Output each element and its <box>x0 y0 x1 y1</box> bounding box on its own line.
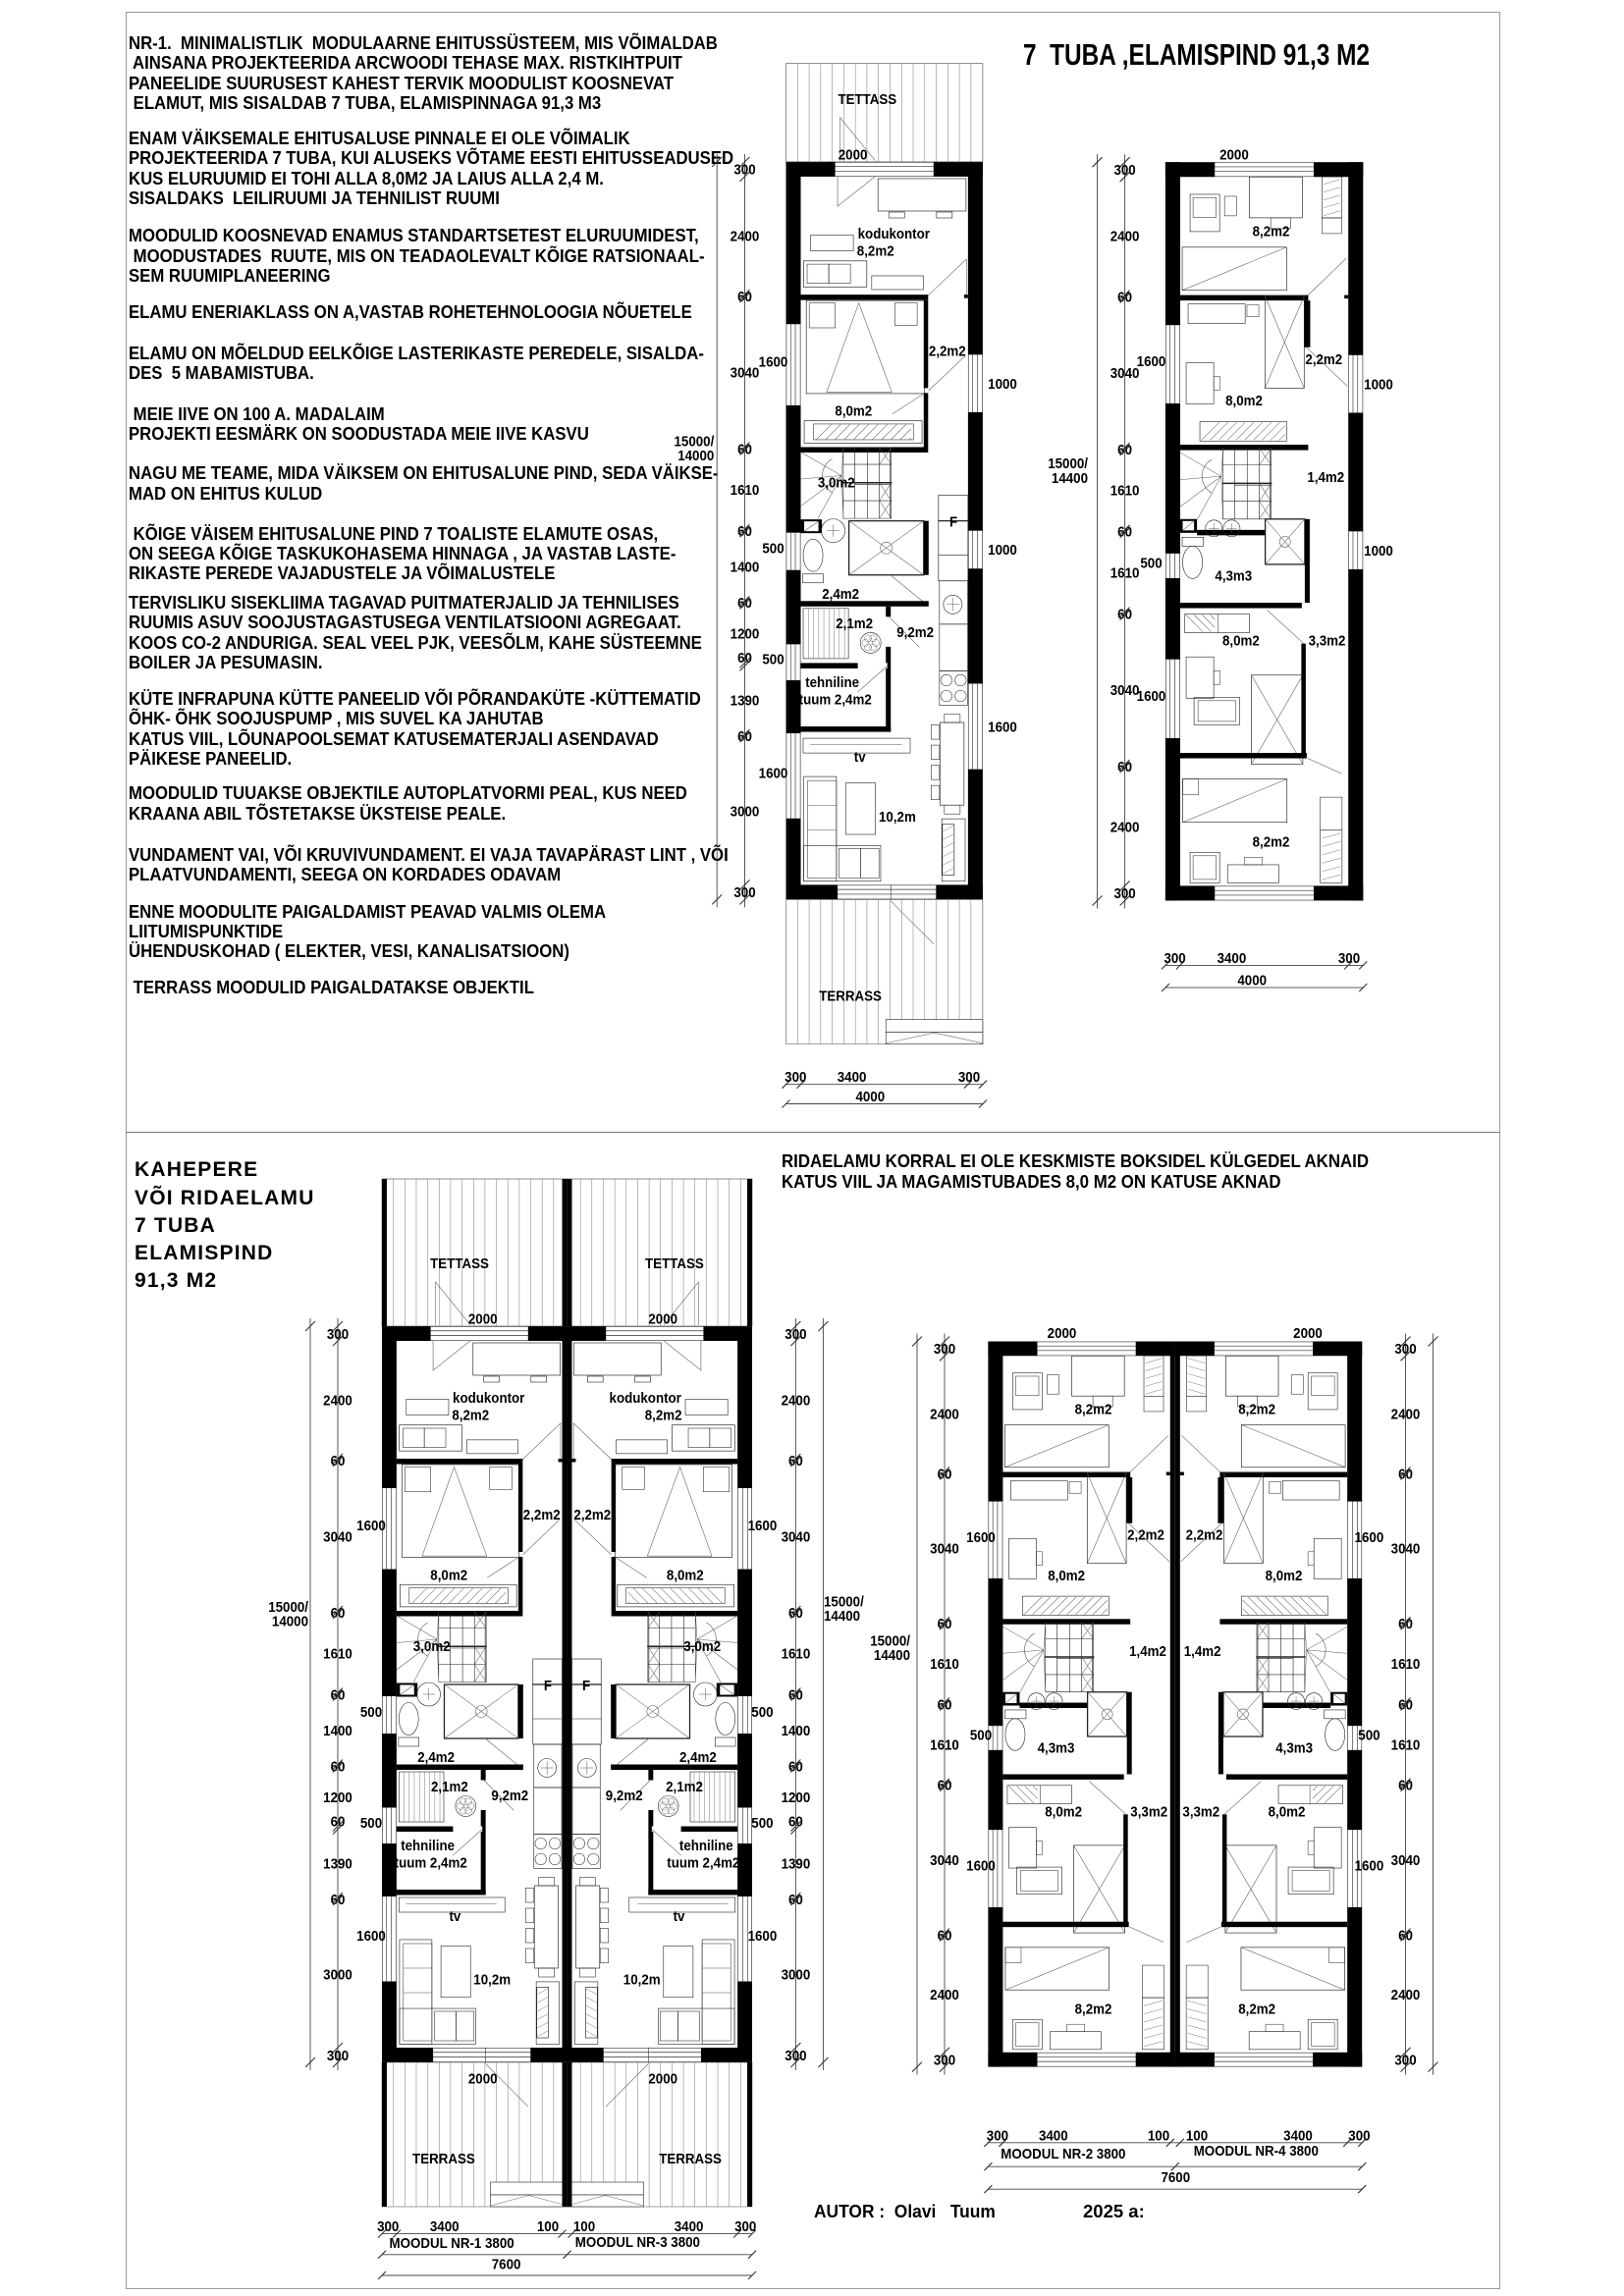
svg-text:8,0m2: 8,0m2 <box>430 1567 467 1583</box>
svg-text:1610: 1610 <box>930 1656 959 1673</box>
svg-text:2,2m2: 2,2m2 <box>573 1507 611 1523</box>
svg-text:9,2m2: 9,2m2 <box>606 1788 643 1804</box>
svg-text:1200: 1200 <box>731 625 760 642</box>
svg-text:1610: 1610 <box>731 482 760 499</box>
svg-text:8,2m2: 8,2m2 <box>1075 1401 1112 1417</box>
svg-text:3400: 3400 <box>1283 2127 1313 2144</box>
svg-text:1610: 1610 <box>782 1645 811 1662</box>
svg-text:1390: 1390 <box>731 692 760 709</box>
svg-text:10,2m: 10,2m <box>623 1971 661 1988</box>
svg-text:60: 60 <box>737 522 752 539</box>
svg-text:1400: 1400 <box>782 1722 811 1738</box>
svg-text:8,2m2: 8,2m2 <box>1253 223 1290 240</box>
svg-text:300: 300 <box>1113 885 1135 902</box>
svg-text:1600: 1600 <box>759 765 788 781</box>
svg-text:8,2m2: 8,2m2 <box>645 1407 682 1423</box>
svg-text:F: F <box>544 1678 552 1694</box>
svg-text:100: 100 <box>537 2218 559 2235</box>
svg-text:1600: 1600 <box>1355 1857 1384 1874</box>
svg-text:1600: 1600 <box>356 1517 386 1533</box>
svg-text:8,0m2: 8,0m2 <box>1048 1568 1085 1584</box>
svg-text:1610: 1610 <box>930 1736 959 1753</box>
svg-text:3400: 3400 <box>1218 949 1247 966</box>
svg-text:2,2m2: 2,2m2 <box>1127 1526 1164 1543</box>
svg-text:3000: 3000 <box>782 1966 811 1983</box>
svg-text:4,3m3: 4,3m3 <box>1038 1739 1075 1756</box>
svg-text:1600: 1600 <box>748 1928 778 1945</box>
svg-text:3000: 3000 <box>731 803 760 820</box>
svg-text:1,4m2: 1,4m2 <box>1129 1642 1166 1659</box>
svg-text:8,0m2: 8,0m2 <box>835 402 872 419</box>
svg-text:1000: 1000 <box>988 375 1017 392</box>
svg-text:2,1m2: 2,1m2 <box>666 1779 703 1795</box>
svg-text:2400: 2400 <box>1110 228 1140 244</box>
svg-text:TETTASS: TETTASS <box>645 1255 704 1272</box>
svg-text:tv: tv <box>854 749 866 766</box>
svg-text:1610: 1610 <box>1391 1656 1421 1673</box>
svg-text:300: 300 <box>1394 2052 1416 2068</box>
svg-text:300: 300 <box>377 2218 399 2235</box>
svg-text:10,2m: 10,2m <box>879 808 916 825</box>
svg-text:TERRASS: TERRASS <box>819 988 882 1004</box>
svg-text:3040: 3040 <box>1391 1540 1421 1557</box>
svg-text:3,3m2: 3,3m2 <box>1130 1803 1167 1820</box>
svg-text:500: 500 <box>762 540 784 557</box>
svg-text:1390: 1390 <box>323 1855 352 1872</box>
svg-text:tv: tv <box>674 1908 685 1925</box>
svg-text:3040: 3040 <box>1110 682 1140 699</box>
svg-text:2,2m2: 2,2m2 <box>1305 350 1342 367</box>
svg-text:1400: 1400 <box>323 1722 352 1738</box>
svg-text:300: 300 <box>987 2127 1008 2144</box>
svg-text:300: 300 <box>785 1325 806 1342</box>
svg-text:2000: 2000 <box>1219 146 1249 163</box>
svg-text:300: 300 <box>785 2047 806 2063</box>
svg-text:kodukontor: kodukontor <box>453 1389 525 1406</box>
svg-text:1600: 1600 <box>1137 687 1166 704</box>
svg-text:2000: 2000 <box>1048 1324 1077 1341</box>
svg-text:4,3m3: 4,3m3 <box>1275 1739 1313 1756</box>
svg-text:300: 300 <box>1338 949 1360 966</box>
svg-text:2000: 2000 <box>1293 1324 1323 1341</box>
svg-text:300: 300 <box>785 1069 806 1086</box>
svg-text:2400: 2400 <box>930 1406 959 1422</box>
svg-text:300: 300 <box>1164 949 1185 966</box>
svg-text:9,2m2: 9,2m2 <box>896 623 934 640</box>
svg-text:2,1m2: 2,1m2 <box>836 614 873 631</box>
svg-text:2,4m2: 2,4m2 <box>417 1749 455 1766</box>
svg-text:300: 300 <box>934 2052 955 2068</box>
svg-text:1,4m2: 1,4m2 <box>1307 469 1344 486</box>
svg-text:500: 500 <box>751 1703 773 1720</box>
svg-text:tehniline: tehniline <box>401 1838 455 1854</box>
svg-text:8,2m2: 8,2m2 <box>1075 2001 1112 2017</box>
svg-text:2,2m2: 2,2m2 <box>929 343 966 359</box>
svg-text:300: 300 <box>958 1069 980 1086</box>
svg-text:8,0m2: 8,0m2 <box>1222 632 1260 649</box>
svg-text:2,2m2: 2,2m2 <box>1186 1526 1223 1543</box>
svg-text:1610: 1610 <box>1391 1736 1421 1753</box>
svg-text:2000: 2000 <box>468 1310 498 1327</box>
svg-text:2400: 2400 <box>1110 819 1140 835</box>
svg-text:1600: 1600 <box>966 1528 996 1545</box>
svg-text:3040: 3040 <box>782 1528 811 1545</box>
svg-text:2400: 2400 <box>1391 1986 1421 2002</box>
svg-text:1600: 1600 <box>356 1928 386 1945</box>
svg-text:8,2m2: 8,2m2 <box>1238 1401 1275 1417</box>
svg-text:300: 300 <box>327 1325 349 1342</box>
svg-text:3400: 3400 <box>1039 2127 1068 2144</box>
svg-text:8,0m2: 8,0m2 <box>667 1567 704 1583</box>
svg-text:1610: 1610 <box>1110 564 1140 581</box>
svg-text:1000: 1000 <box>988 542 1017 559</box>
svg-text:1400: 1400 <box>731 559 760 575</box>
svg-text:MOODUL NR-4 3800: MOODUL NR-4 3800 <box>1194 2143 1319 2160</box>
svg-text:tuum 2,4m2: tuum 2,4m2 <box>799 691 872 708</box>
svg-text:3000: 3000 <box>323 1966 352 1983</box>
svg-text:4000: 4000 <box>855 1088 885 1104</box>
svg-text:500: 500 <box>762 651 784 667</box>
svg-text:1600: 1600 <box>759 353 788 370</box>
svg-text:100: 100 <box>1186 2127 1208 2144</box>
svg-text:500: 500 <box>360 1814 382 1831</box>
svg-text:1000: 1000 <box>1364 376 1393 393</box>
svg-text:1600: 1600 <box>1355 1528 1384 1545</box>
svg-text:500: 500 <box>970 1727 992 1743</box>
svg-text:8,2m2: 8,2m2 <box>452 1407 489 1423</box>
svg-text:500: 500 <box>1140 555 1162 571</box>
svg-text:500: 500 <box>360 1703 382 1720</box>
svg-text:3040: 3040 <box>323 1528 352 1545</box>
svg-text:300: 300 <box>733 884 755 901</box>
svg-text:2400: 2400 <box>731 228 760 244</box>
svg-text:500: 500 <box>1358 1727 1380 1743</box>
svg-text:tehniline: tehniline <box>679 1838 733 1854</box>
svg-text:2,1m2: 2,1m2 <box>431 1779 468 1795</box>
svg-text:8,0m2: 8,0m2 <box>1045 1803 1082 1820</box>
svg-text:1600: 1600 <box>988 719 1017 735</box>
svg-text:10,2m: 10,2m <box>473 1971 511 1988</box>
svg-text:TETTASS: TETTASS <box>430 1255 489 1272</box>
svg-text:2000: 2000 <box>648 1310 677 1327</box>
svg-text:2,4m2: 2,4m2 <box>679 1749 717 1766</box>
svg-text:kodukontor: kodukontor <box>858 225 931 241</box>
svg-text:MOODUL NR-3 3800: MOODUL NR-3 3800 <box>575 2233 700 2250</box>
svg-text:100: 100 <box>1148 2127 1169 2144</box>
svg-text:1390: 1390 <box>782 1855 811 1872</box>
svg-text:8,0m2: 8,0m2 <box>1269 1803 1306 1820</box>
svg-text:2000: 2000 <box>839 146 868 163</box>
svg-text:1,4m2: 1,4m2 <box>1184 1642 1221 1659</box>
svg-text:7600: 7600 <box>492 2256 521 2272</box>
svg-text:300: 300 <box>1348 2127 1370 2144</box>
svg-text:3400: 3400 <box>430 2218 460 2235</box>
svg-text:300: 300 <box>327 2047 349 2063</box>
svg-text:1600: 1600 <box>748 1517 778 1533</box>
svg-text:4000: 4000 <box>1237 972 1267 988</box>
svg-text:4,3m3: 4,3m3 <box>1215 567 1252 584</box>
svg-text:7600: 7600 <box>1161 2169 1190 2186</box>
svg-text:F: F <box>582 1678 590 1694</box>
svg-text:1610: 1610 <box>1110 482 1140 499</box>
svg-text:3,0m2: 3,0m2 <box>683 1637 721 1654</box>
svg-text:2,2m2: 2,2m2 <box>523 1507 561 1523</box>
svg-text:100: 100 <box>573 2218 595 2235</box>
svg-text:2400: 2400 <box>930 1986 959 2002</box>
svg-text:tuum 2,4m2: tuum 2,4m2 <box>395 1854 467 1871</box>
svg-text:TERRASS: TERRASS <box>659 2150 722 2166</box>
svg-text:14400: 14400 <box>824 1608 860 1625</box>
svg-text:300: 300 <box>1394 1341 1416 1358</box>
svg-text:1600: 1600 <box>966 1857 996 1874</box>
svg-text:2400: 2400 <box>1391 1406 1421 1422</box>
svg-text:2,4m2: 2,4m2 <box>822 585 859 602</box>
svg-text:2400: 2400 <box>782 1392 811 1409</box>
svg-text:3,0m2: 3,0m2 <box>818 474 855 491</box>
svg-text:3,3m2: 3,3m2 <box>1182 1803 1219 1820</box>
svg-text:2400: 2400 <box>323 1392 352 1409</box>
svg-text:8,0m2: 8,0m2 <box>1266 1568 1303 1584</box>
svg-text:8,2m2: 8,2m2 <box>857 242 894 259</box>
svg-text:3400: 3400 <box>838 1069 867 1086</box>
svg-text:300: 300 <box>733 161 755 178</box>
svg-text:3,0m2: 3,0m2 <box>413 1637 451 1654</box>
svg-text:8,0m2: 8,0m2 <box>1225 392 1263 408</box>
svg-text:MOODUL NR-1 3800: MOODUL NR-1 3800 <box>390 2235 514 2252</box>
svg-text:1200: 1200 <box>782 1789 811 1805</box>
svg-text:1000: 1000 <box>1364 542 1393 559</box>
svg-text:8,2m2: 8,2m2 <box>1253 833 1290 850</box>
svg-text:14400: 14400 <box>874 1646 910 1663</box>
svg-text:8,2m2: 8,2m2 <box>1238 2001 1275 2017</box>
svg-text:3400: 3400 <box>675 2218 704 2235</box>
svg-text:3040: 3040 <box>930 1851 959 1868</box>
svg-text:3,3m2: 3,3m2 <box>1309 632 1346 649</box>
svg-text:tehniline: tehniline <box>805 673 859 690</box>
svg-text:14000: 14000 <box>677 448 714 464</box>
svg-text:300: 300 <box>1113 161 1135 178</box>
svg-text:14400: 14400 <box>1052 469 1088 486</box>
svg-text:F: F <box>949 513 957 530</box>
svg-text:1200: 1200 <box>323 1789 352 1805</box>
svg-text:3040: 3040 <box>731 364 760 381</box>
svg-text:500: 500 <box>751 1814 773 1831</box>
svg-text:2000: 2000 <box>648 2070 677 2087</box>
svg-text:300: 300 <box>934 1341 955 1358</box>
svg-text:1600: 1600 <box>1137 353 1166 370</box>
svg-text:3040: 3040 <box>930 1540 959 1557</box>
svg-text:MOODUL NR-2 3800: MOODUL NR-2 3800 <box>1001 2145 1125 2162</box>
svg-text:300: 300 <box>734 2218 756 2235</box>
svg-text:tuum 2,4m2: tuum 2,4m2 <box>667 1854 739 1871</box>
svg-text:TERRASS: TERRASS <box>412 2150 475 2166</box>
svg-text:kodukontor: kodukontor <box>610 1389 682 1406</box>
svg-text:2000: 2000 <box>468 2070 498 2087</box>
svg-text:tv: tv <box>449 1908 460 1925</box>
svg-text:1610: 1610 <box>323 1645 352 1662</box>
svg-text:9,2m2: 9,2m2 <box>491 1788 528 1804</box>
svg-text:3040: 3040 <box>1110 365 1140 382</box>
svg-text:3040: 3040 <box>1391 1851 1421 1868</box>
svg-text:TETTASS: TETTASS <box>838 90 896 107</box>
svg-text:14000: 14000 <box>272 1613 308 1629</box>
